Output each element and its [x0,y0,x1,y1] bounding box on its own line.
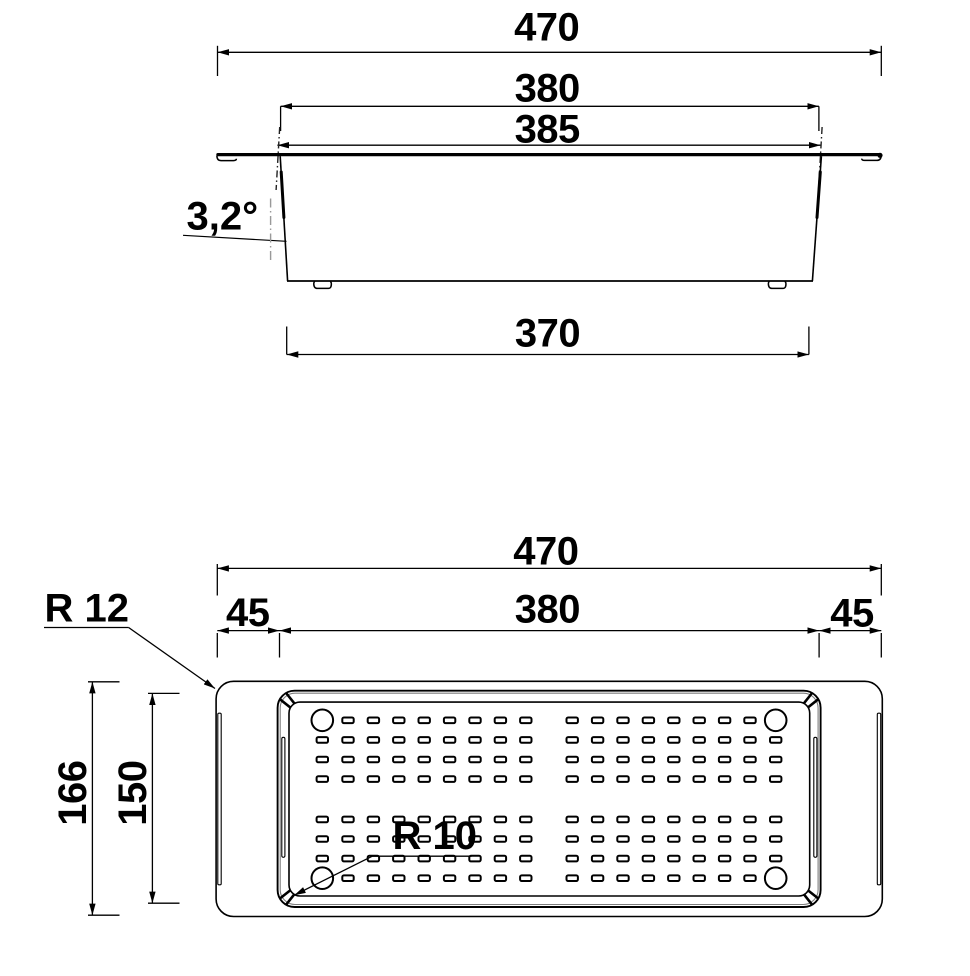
svg-text:45: 45 [226,591,270,635]
svg-text:R 10: R 10 [393,814,478,858]
svg-text:380: 380 [515,67,580,111]
svg-text:385: 385 [515,107,580,151]
svg-text:R 12: R 12 [45,586,130,630]
svg-text:45: 45 [830,591,874,635]
svg-text:150: 150 [111,760,155,825]
svg-text:470: 470 [514,5,579,49]
svg-text:380: 380 [515,588,580,632]
svg-text:3,2°: 3,2° [187,195,259,239]
svg-text:470: 470 [513,530,578,574]
svg-text:370: 370 [515,311,580,355]
svg-text:166: 166 [51,760,95,825]
